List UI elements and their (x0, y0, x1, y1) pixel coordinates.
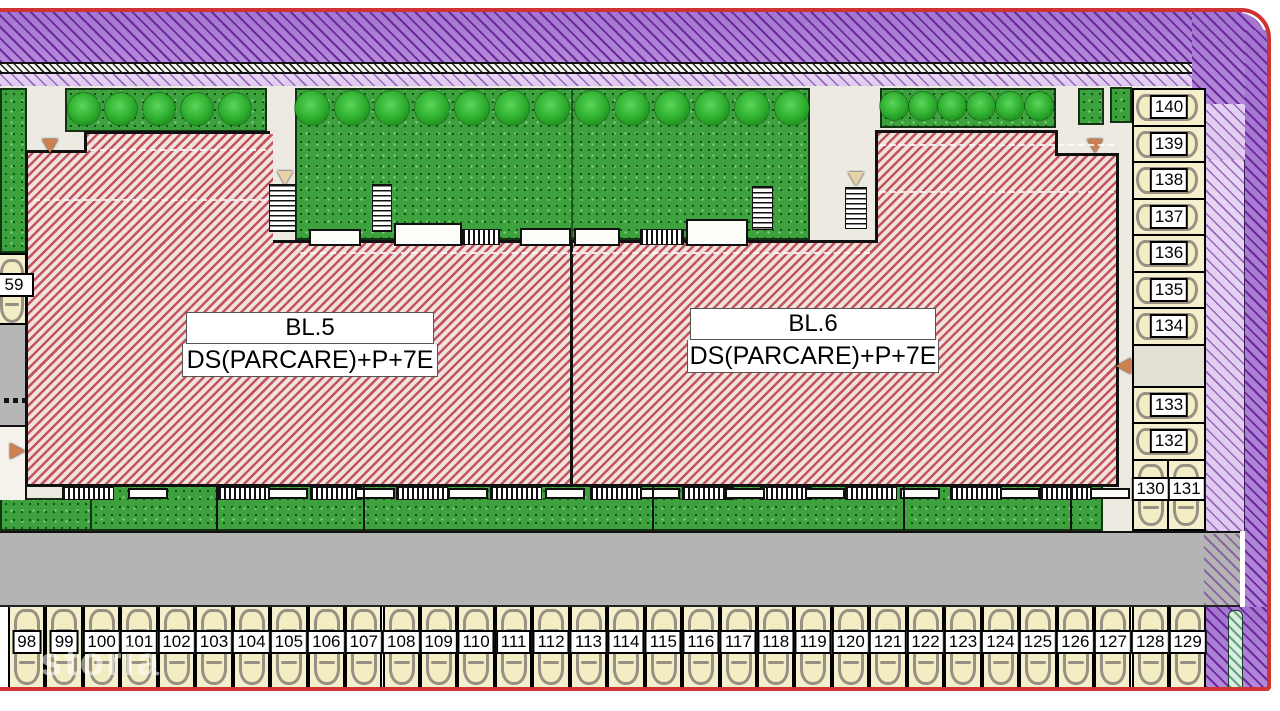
tree-icon (996, 92, 1024, 120)
terrace (309, 229, 361, 246)
vent-grille (62, 487, 114, 500)
tree-icon (495, 91, 529, 125)
overhang-dashed-line (34, 199, 266, 201)
tree-icon (938, 92, 966, 120)
tree-icon (535, 91, 569, 125)
strip-divider (1070, 485, 1072, 531)
vent-grille (590, 487, 642, 500)
tree-icon (775, 91, 809, 125)
tree-icon (181, 93, 213, 125)
vent-grille (950, 487, 1002, 500)
overhang-dashed-line (880, 144, 1114, 146)
strip-divider (216, 485, 218, 531)
terrace (686, 219, 748, 246)
tree-icon (909, 92, 937, 120)
vent-grille (1040, 487, 1092, 500)
stairs-icon (269, 184, 296, 232)
tree-icon (295, 91, 329, 125)
tree-icon (655, 91, 689, 125)
tree-icon (335, 91, 369, 125)
vent-grille (218, 487, 270, 500)
terrace (545, 488, 585, 499)
vent-grille (462, 229, 500, 245)
terrace (1090, 488, 1130, 499)
terrace (128, 488, 168, 499)
vent-grille (490, 487, 542, 500)
overhang-dashed-line (90, 149, 266, 151)
terrace (355, 488, 395, 499)
overhang-dashed-line (300, 252, 870, 254)
terrace (448, 488, 488, 499)
terrace (805, 488, 845, 499)
strip-divider (652, 485, 654, 531)
terrace (574, 228, 620, 246)
tree-icon (415, 91, 449, 125)
tree-icon (105, 93, 137, 125)
tree-icon (695, 91, 729, 125)
tree-icon (1025, 92, 1053, 120)
tree-icon (615, 91, 649, 125)
site-plan: BL.5 DS(PARCARE)+P+7E BL.6 DS(PARCARE)+P… (0, 0, 1280, 711)
tree-icon (967, 92, 995, 120)
strip-divider (363, 485, 365, 531)
terrace (1000, 488, 1040, 499)
stairs-icon (752, 186, 773, 230)
terrace (900, 488, 940, 499)
tree-icon (455, 91, 489, 125)
tree-icon (880, 92, 908, 120)
vent-grille (396, 487, 448, 500)
terrace (640, 488, 680, 499)
strip-divider (903, 485, 905, 531)
terrace (520, 228, 571, 246)
watermark: storia (40, 640, 161, 685)
tree-icon (68, 93, 100, 125)
terrace (394, 223, 462, 246)
overhang-dashed-line (880, 191, 1114, 193)
vent-grille (640, 229, 684, 245)
terrace (725, 488, 765, 499)
terrace (268, 488, 308, 499)
tree-icon (375, 91, 409, 125)
tree-icon (219, 93, 251, 125)
tree-icon (143, 93, 175, 125)
vent-grille (845, 487, 897, 500)
stairs-icon (372, 184, 392, 232)
tree-icon (735, 91, 769, 125)
stairs-icon (845, 187, 867, 229)
tree-icon (575, 91, 609, 125)
